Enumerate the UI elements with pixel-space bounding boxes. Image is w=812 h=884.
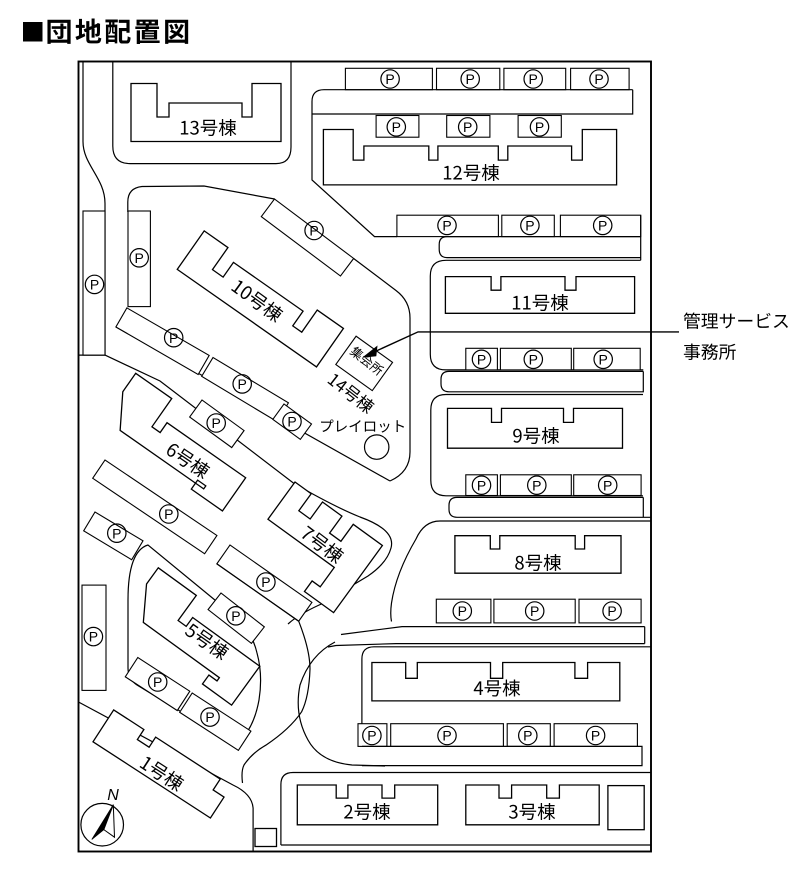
svg-text:P: P	[463, 119, 472, 135]
svg-text:P: P	[367, 728, 376, 744]
svg-text:P: P	[261, 574, 270, 590]
svg-text:P: P	[591, 728, 600, 744]
svg-text:P: P	[466, 71, 475, 87]
svg-text:P: P	[169, 330, 178, 346]
svg-text:P: P	[442, 728, 451, 744]
svg-text:P: P	[112, 525, 121, 541]
svg-text:P: P	[477, 351, 486, 367]
svg-text:P: P	[458, 603, 467, 619]
svg-text:P: P	[392, 119, 401, 135]
svg-text:P: P	[205, 709, 214, 725]
svg-text:P: P	[153, 674, 162, 690]
svg-text:P: P	[287, 414, 296, 430]
svg-text:N: N	[107, 787, 119, 804]
svg-text:P: P	[442, 218, 451, 234]
svg-text:P: P	[164, 506, 173, 522]
svg-text:P: P	[523, 728, 532, 744]
svg-text:P: P	[529, 351, 538, 367]
svg-text:P: P	[599, 351, 608, 367]
svg-text:P: P	[89, 629, 98, 645]
svg-text:P: P	[238, 376, 247, 392]
svg-text:P: P	[529, 71, 538, 87]
svg-text:P: P	[607, 603, 616, 619]
svg-text:P: P	[594, 71, 603, 87]
svg-text:P: P	[525, 218, 534, 234]
svg-text:P: P	[231, 608, 240, 624]
svg-text:P: P	[530, 603, 539, 619]
svg-text:P: P	[135, 250, 144, 266]
svg-text:P: P	[535, 119, 544, 135]
svg-text:P: P	[477, 477, 486, 493]
svg-text:P: P	[603, 477, 612, 493]
svg-text:P: P	[212, 415, 221, 431]
svg-text:P: P	[385, 71, 394, 87]
svg-text:P: P	[598, 218, 607, 234]
svg-text:P: P	[309, 223, 318, 239]
svg-text:P: P	[90, 277, 99, 293]
svg-text:P: P	[532, 477, 541, 493]
